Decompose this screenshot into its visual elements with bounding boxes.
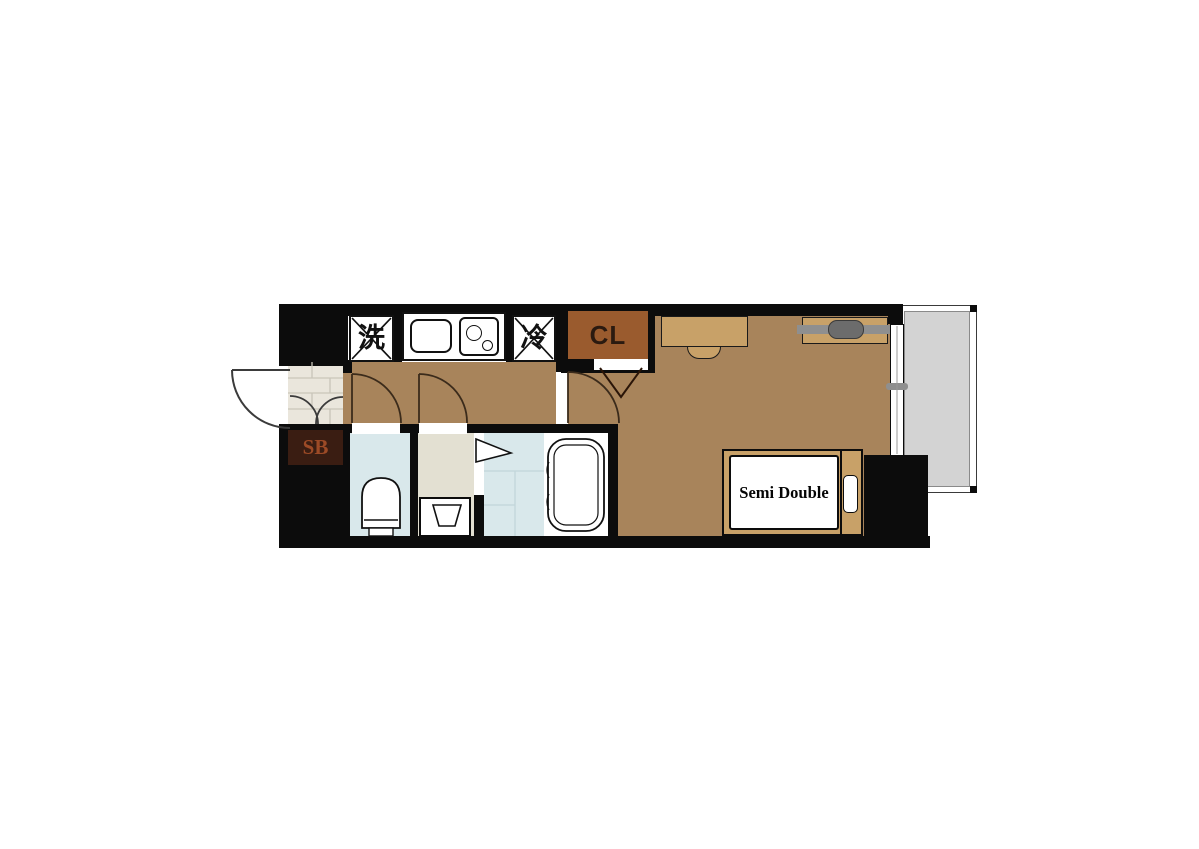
main-room-door: [568, 372, 619, 423]
toilet: [362, 478, 400, 536]
entry-door: [232, 370, 290, 428]
bathroom-folding-door: [476, 439, 511, 462]
shoe-cabinet-door-arcs: [290, 396, 343, 424]
washroom-door: [419, 374, 467, 423]
bathroom-tile-lines: [484, 471, 544, 536]
tile-grout-lines: [288, 362, 343, 424]
washbasin-bowl: [433, 505, 461, 526]
toilet-door: [352, 374, 401, 423]
closet-folding-door: [600, 368, 642, 397]
floor-plan-canvas: 洗 冷 CL SB Semi Double: [0, 0, 1199, 849]
bathtub: [547, 439, 604, 531]
fixtures-layer: [0, 0, 1199, 849]
